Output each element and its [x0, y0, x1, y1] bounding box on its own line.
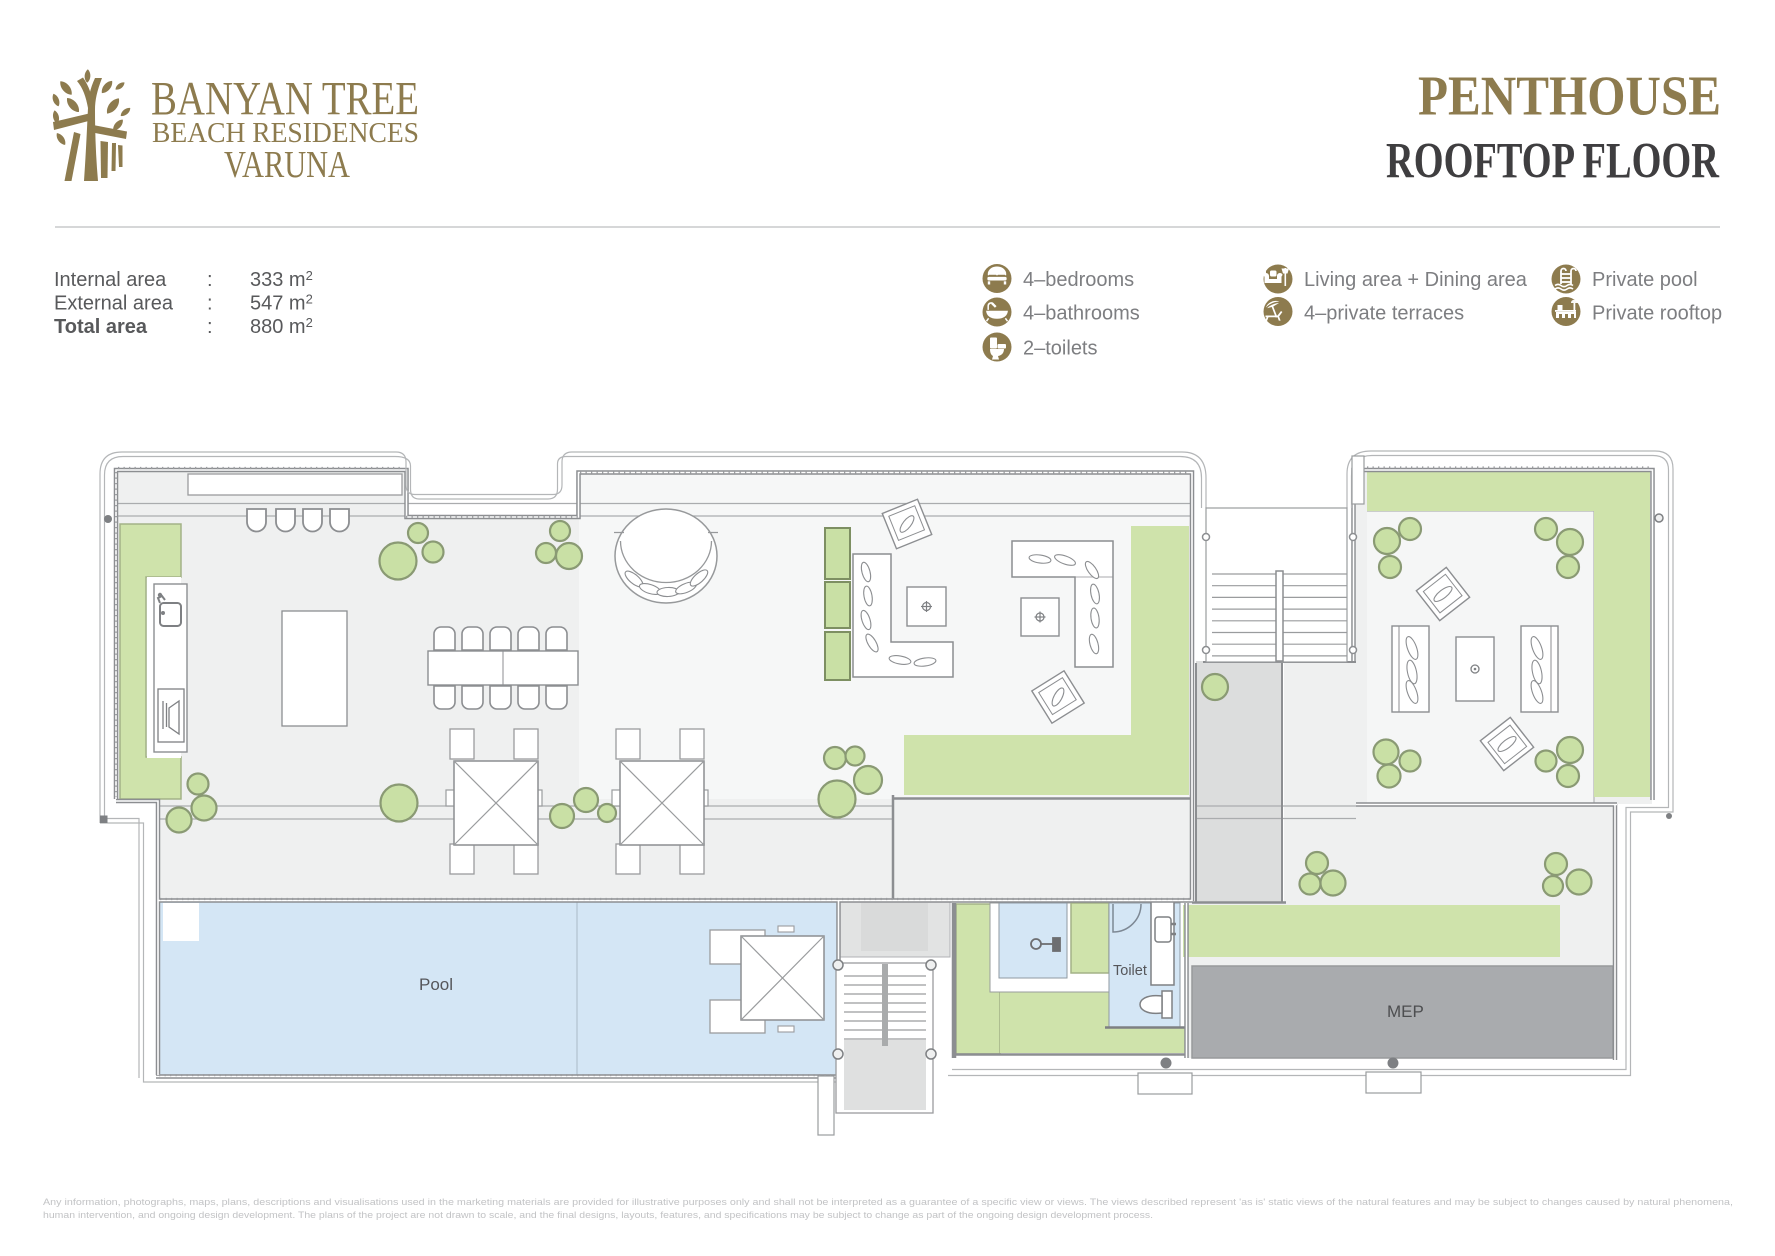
- svg-text::: :: [207, 269, 213, 291]
- svg-text:Total area: Total area: [54, 316, 148, 338]
- svg-text:Private pool: Private pool: [1592, 269, 1698, 291]
- svg-text:Toilet: Toilet: [1113, 963, 1147, 979]
- svg-text::: :: [207, 316, 213, 338]
- svg-text:human intervention, and ongoin: human intervention, and ongoing design d…: [43, 1210, 1153, 1221]
- svg-text:4–bathrooms: 4–bathrooms: [1023, 303, 1140, 325]
- svg-text:Any information, photographs,: Any information, photographs, maps, plan…: [43, 1197, 1733, 1208]
- svg-text:4–bedrooms: 4–bedrooms: [1023, 269, 1134, 291]
- svg-text:Private rooftop: Private rooftop: [1592, 303, 1722, 325]
- svg-text:Living area + Dining area: Living area + Dining area: [1304, 269, 1528, 291]
- svg-text:880 m2: 880 m2: [250, 315, 313, 338]
- svg-text:PENTHOUSE: PENTHOUSE: [1418, 66, 1721, 128]
- svg-text:ROOFTOP FLOOR: ROOFTOP FLOOR: [1386, 134, 1720, 190]
- svg-text:MEP: MEP: [1387, 1002, 1424, 1021]
- svg-text:VARUNA: VARUNA: [224, 144, 350, 186]
- svg-text:547 m2: 547 m2: [250, 292, 313, 315]
- svg-text:2–toilets: 2–toilets: [1023, 338, 1098, 360]
- svg-text::: :: [207, 293, 213, 315]
- svg-text:Pool: Pool: [419, 975, 453, 994]
- svg-text:333 m2: 333 m2: [250, 268, 313, 291]
- svg-text:External area: External area: [54, 293, 174, 315]
- svg-text:4–private terraces: 4–private terraces: [1304, 303, 1464, 325]
- svg-text:Internal area: Internal area: [54, 269, 167, 291]
